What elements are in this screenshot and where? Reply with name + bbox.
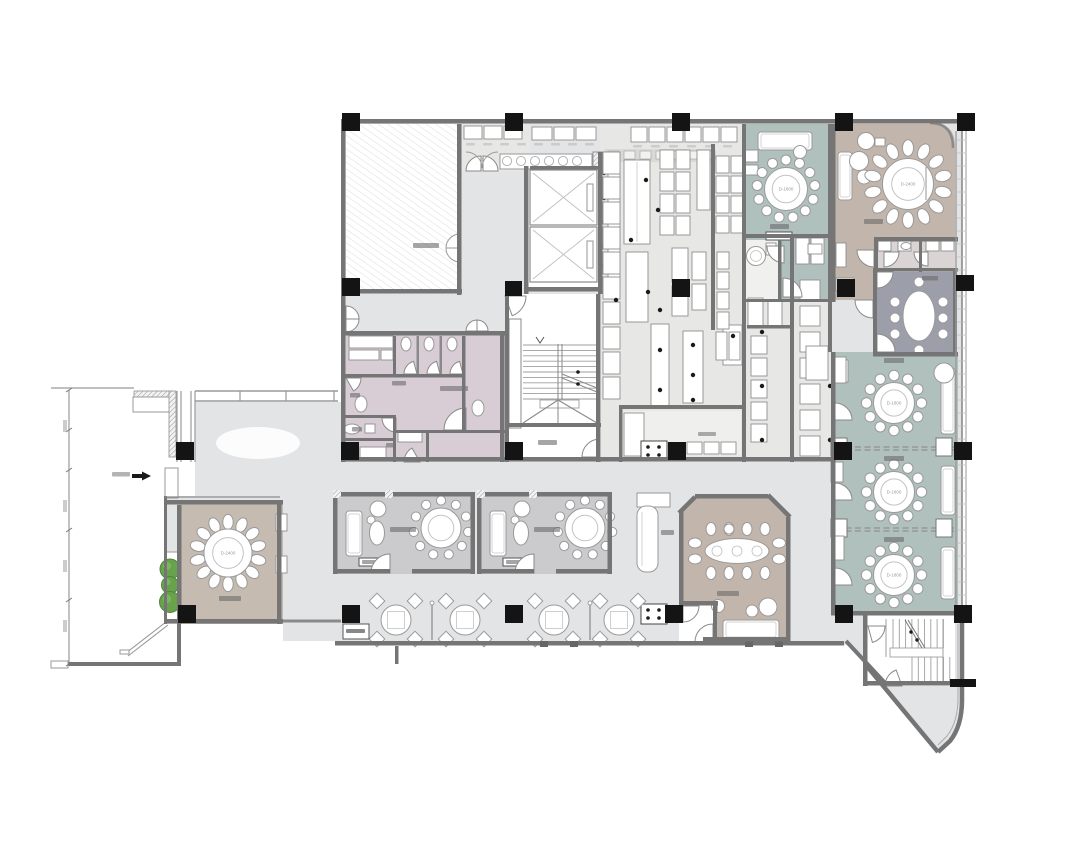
svg-text:D-2400: D-2400 [221,551,236,556]
svg-text:D-1800: D-1800 [779,187,794,192]
svg-text:D-1800: D-1800 [887,490,902,495]
svg-text:D-2400: D-2400 [901,182,916,187]
svg-text:D-1800: D-1800 [887,401,902,406]
svg-text:D-1800: D-1800 [887,573,902,578]
